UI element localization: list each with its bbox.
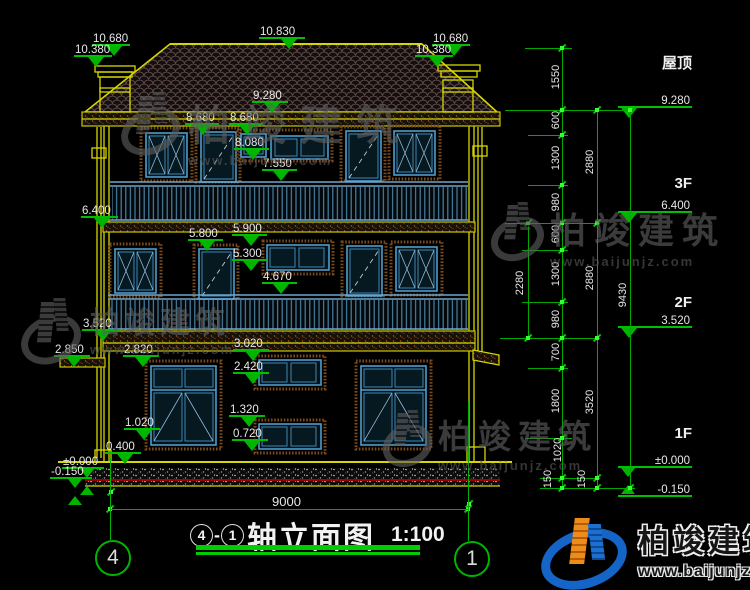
dim-extension-line <box>525 438 572 439</box>
dim-grip <box>560 108 564 112</box>
span-dim-line <box>110 509 468 510</box>
dim-grip <box>560 486 564 490</box>
dim-value: 150 <box>576 456 588 502</box>
level-symbol <box>245 150 261 160</box>
cad-elevation-drawing: 4 - 1 轴立面图 1:100 柏竣建筑 www.baijunjz.com 1… <box>0 0 750 590</box>
dim-grip <box>560 221 564 225</box>
dim-extension-line <box>505 110 635 111</box>
dim-grip <box>595 336 599 340</box>
level-marker: 10.830 <box>259 22 305 56</box>
level-symbol <box>243 261 259 271</box>
level-marker: 2.850 <box>54 340 90 374</box>
axis-bubble: 4 <box>95 540 131 576</box>
dim-grip <box>595 476 599 480</box>
title-scale: 1:100 <box>391 523 445 547</box>
dim-grip <box>628 486 632 490</box>
title-axis-bubble-from: 4 <box>190 524 213 547</box>
dim-value: 1300 <box>550 251 562 297</box>
level-symbol <box>135 357 151 367</box>
floor-1f-openings <box>146 356 431 453</box>
level-symbol <box>245 374 261 384</box>
dim-extension-line <box>525 48 572 49</box>
floor-label: 屋顶 <box>620 52 692 73</box>
dim-value: 2880 <box>584 139 596 185</box>
dim-value: 1550 <box>550 54 562 100</box>
dim-grip <box>560 248 564 252</box>
dim-grip <box>560 436 564 440</box>
level-symbol <box>273 171 289 181</box>
dim-value: 2280 <box>514 260 526 306</box>
dim-chain-line <box>528 223 529 338</box>
dim-grip <box>560 183 564 187</box>
title-underline <box>196 545 420 550</box>
brand-watermark: 柏竣建筑 www.baijunjz.com <box>538 512 750 584</box>
balcony-railing-3f <box>103 182 475 232</box>
dim-chain-line <box>562 48 563 488</box>
dim-grip <box>595 221 599 225</box>
dim-grip <box>560 336 564 340</box>
level-symbol <box>94 218 110 228</box>
level-symbol <box>281 39 297 49</box>
level-symbol <box>244 441 260 451</box>
level-symbol <box>195 125 211 135</box>
level-marker: 7.550 <box>262 154 297 188</box>
dim-grip <box>560 366 564 370</box>
axis-bubble: 1 <box>454 541 490 577</box>
level-symbol <box>95 331 111 341</box>
level-marker: 6.400 <box>81 201 118 235</box>
level-symbol <box>621 213 637 223</box>
level-symbol <box>199 241 215 251</box>
dim-value: 9430 <box>617 272 629 318</box>
level-symbol <box>429 57 445 67</box>
dim-grip <box>560 133 564 137</box>
level-symbol <box>117 454 133 464</box>
level-marker: -0.150 <box>50 462 92 496</box>
axis-line <box>468 402 469 541</box>
brand-url: www.baijunjz.com <box>638 563 750 581</box>
dim-grip <box>560 300 564 304</box>
level-symbol <box>66 357 82 367</box>
brand-name: 柏竣建筑 <box>638 516 750 561</box>
dim-value: 150 <box>542 456 554 502</box>
level-symbol <box>88 57 104 67</box>
dim-grip <box>560 46 564 50</box>
title-text: 轴立面图 <box>247 513 375 557</box>
level-marker: 4.670 <box>262 267 297 301</box>
dim-chain-line <box>630 110 631 488</box>
dim-grip <box>628 108 632 112</box>
title-dash: - <box>214 525 220 546</box>
dim-grip <box>526 336 530 340</box>
dim-value: 1300 <box>550 135 562 181</box>
dim-value: 1800 <box>550 378 562 424</box>
downspout-right <box>473 127 487 352</box>
axis-line <box>110 458 111 540</box>
brand-logo-icon <box>538 512 638 584</box>
dim-grip <box>595 108 599 112</box>
drawing-title: 4 - 1 轴立面图 1:100 <box>190 513 445 557</box>
level-marker: 10.380 <box>74 40 112 74</box>
awning-right <box>473 350 499 365</box>
dim-chain-line <box>597 110 598 488</box>
level-marker: 2.420 <box>233 357 269 391</box>
level-marker: 5.800 <box>188 224 223 258</box>
dim-value: 2880 <box>584 255 596 301</box>
dim-value: 3520 <box>584 379 596 425</box>
title-axis-bubble-to: 1 <box>221 524 244 547</box>
title-underline <box>196 552 420 555</box>
level-marker: 0.720 <box>232 424 268 458</box>
level-symbol <box>621 328 637 338</box>
level-marker: 8.680 <box>185 108 219 142</box>
level-marker: 2.820 <box>123 340 159 374</box>
level-symbol <box>264 103 280 113</box>
level-marker: 10.380 <box>415 40 453 74</box>
level-symbol <box>68 479 82 495</box>
dim-grip <box>526 221 530 225</box>
dim-grip <box>595 486 599 490</box>
level-symbol <box>273 284 289 294</box>
dim-grip <box>560 476 564 480</box>
span-dim-value: 9000 <box>272 494 301 509</box>
